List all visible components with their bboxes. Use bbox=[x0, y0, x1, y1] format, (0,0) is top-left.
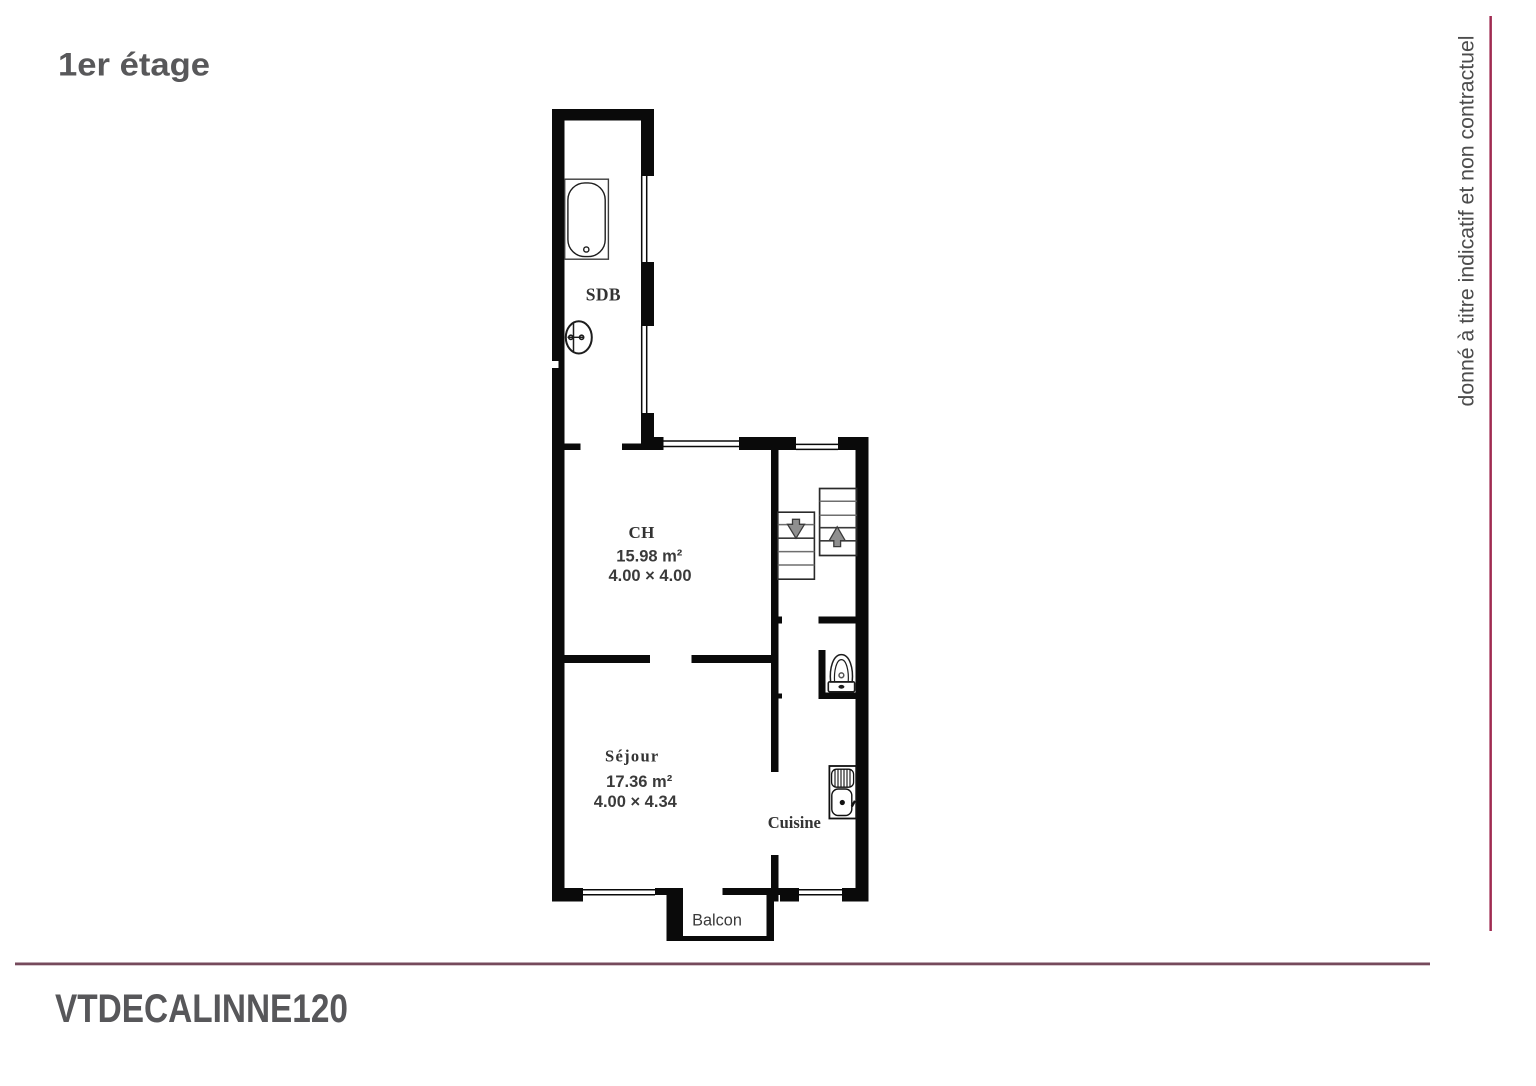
svg-text:17.36 m²: 17.36 m² bbox=[606, 773, 673, 791]
svg-text:Balcon: Balcon bbox=[692, 911, 742, 929]
svg-text:Séjour: Séjour bbox=[605, 746, 660, 765]
svg-text:CH: CH bbox=[629, 523, 655, 542]
svg-text:15.98 m²: 15.98 m² bbox=[616, 547, 683, 565]
svg-text:4.00 × 4.00: 4.00 × 4.00 bbox=[608, 567, 691, 585]
svg-text:1er étage: 1er étage bbox=[58, 47, 210, 83]
svg-text:Cuisine: Cuisine bbox=[768, 813, 821, 832]
svg-text:SDB: SDB bbox=[586, 285, 621, 305]
svg-text:donné à titre indicatif et non: donné à titre indicatif et non contractu… bbox=[1456, 36, 1479, 407]
svg-text:4.00 × 4.34: 4.00 × 4.34 bbox=[594, 793, 678, 811]
svg-text:VTDECALINNE120: VTDECALINNE120 bbox=[55, 987, 348, 1031]
